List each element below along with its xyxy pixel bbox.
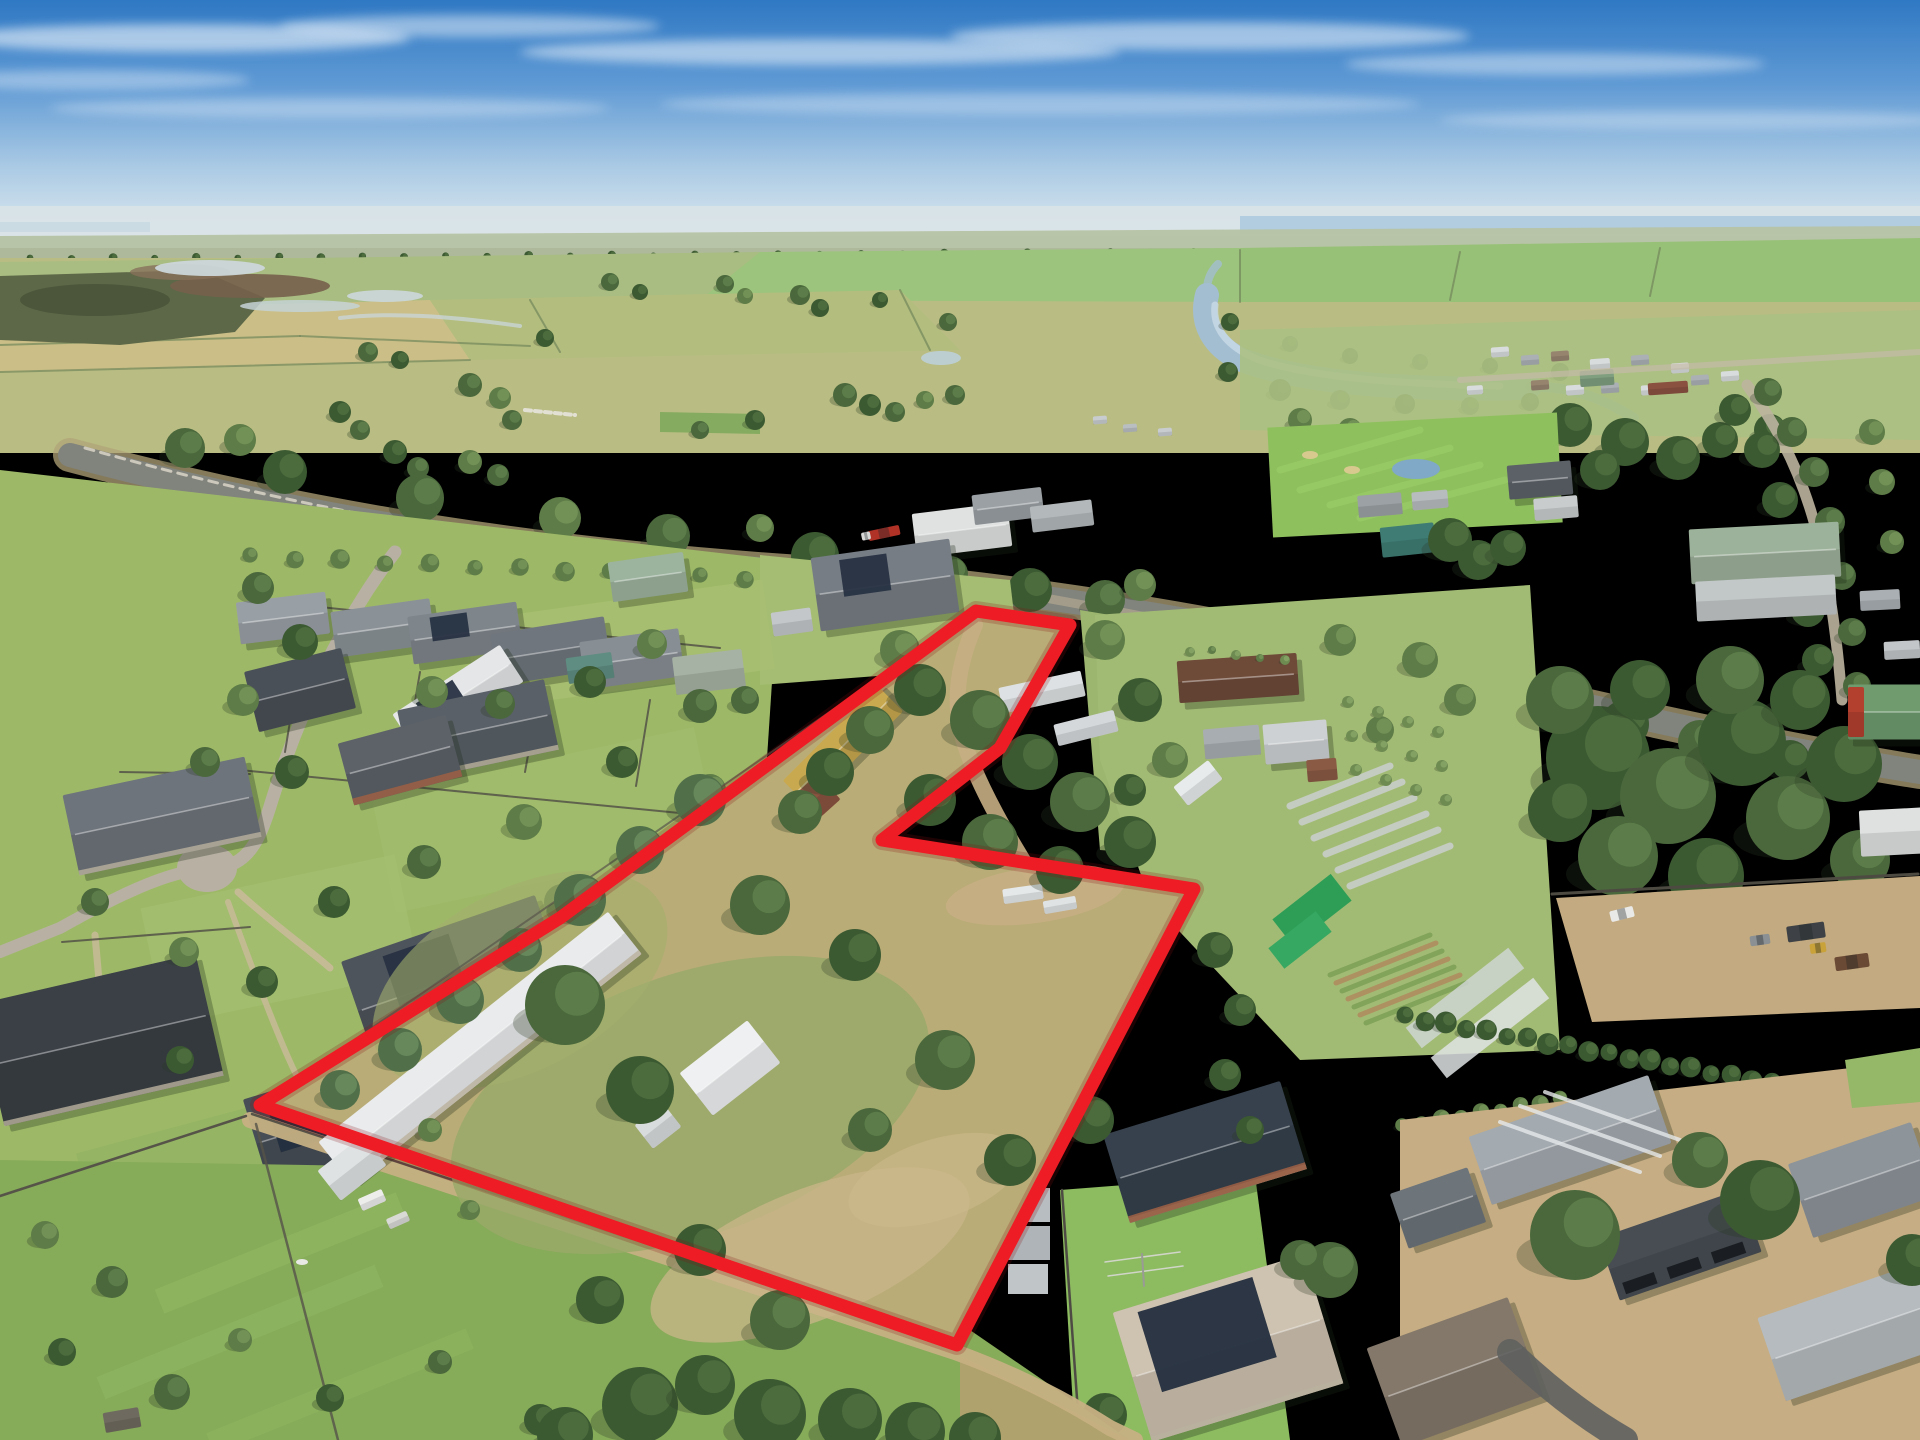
aerial-photo-canvas [0,0,1920,1440]
landscape-layers [0,0,1920,1440]
aerial-photo [0,0,1920,1440]
